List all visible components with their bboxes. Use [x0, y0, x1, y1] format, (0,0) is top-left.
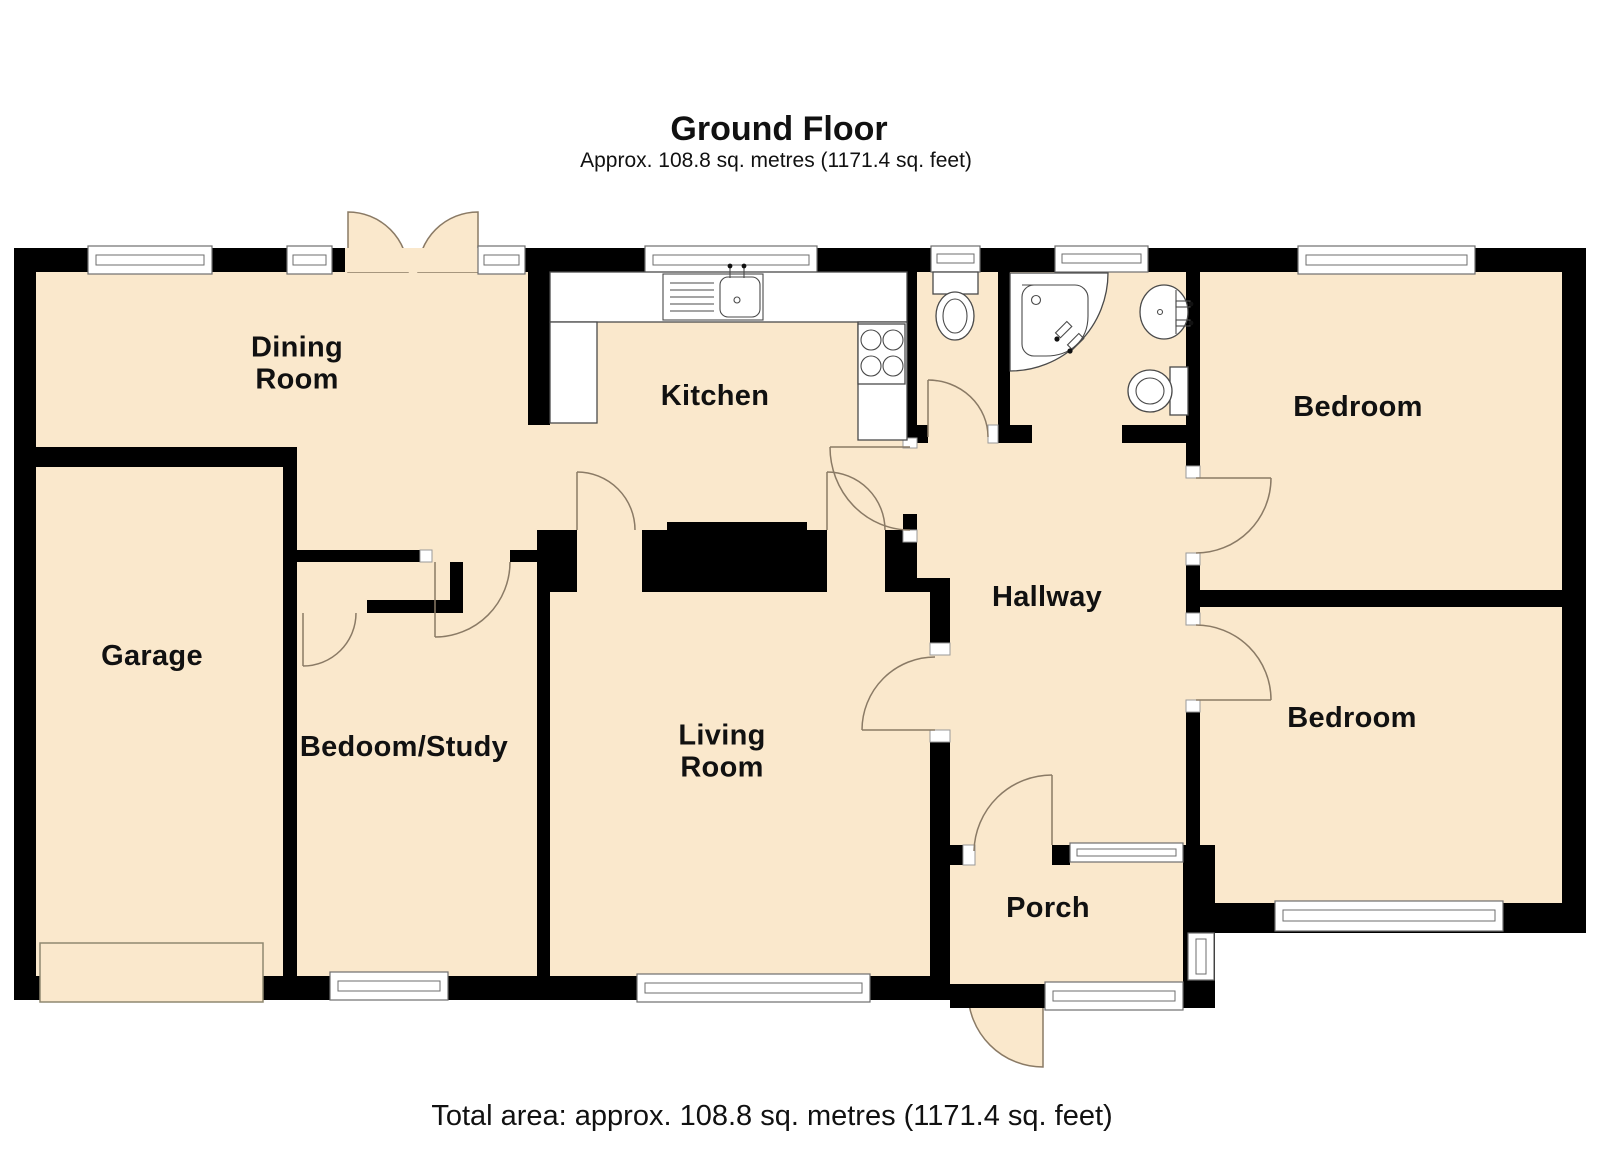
bathroom-window [1055, 246, 1148, 272]
room-label-living-room: Living Room [678, 720, 765, 785]
dining-window-3 [478, 246, 525, 274]
living-room-window [637, 974, 870, 1002]
room-label-dining-room: Dining Room [251, 332, 343, 397]
kitchen-window [645, 246, 817, 274]
room-label-bedroom-bottom: Bedroom [1287, 702, 1416, 734]
bedroom-bottom-window [1275, 901, 1503, 931]
porch-side-window [1188, 933, 1214, 980]
dining-window-1 [88, 246, 212, 274]
hob [858, 324, 905, 384]
garage-door [40, 943, 263, 1002]
room-label-kitchen: Kitchen [661, 380, 769, 412]
porch-top-window [1070, 843, 1183, 862]
porch-bottom-window [1045, 982, 1183, 1010]
floorplan-drawing [0, 0, 1600, 1164]
bedroom-top-window [1298, 246, 1475, 274]
room-label-bedroom-top: Bedroom [1293, 391, 1422, 423]
chimney-breast [667, 522, 807, 592]
total-area-text: Total area: approx. 108.8 sq. metres (11… [431, 1100, 1112, 1133]
wc-window [931, 246, 980, 272]
room-label-hallway: Hallway [992, 581, 1102, 613]
wc-toilet [933, 272, 978, 340]
room-label-bedroom-study: Bedoom/Study [300, 731, 508, 763]
room-label-porch: Porch [1006, 892, 1090, 924]
floorplan-page: Ground Floor Approx. 108.8 sq. metres (1… [0, 0, 1600, 1164]
dining-window-2 [287, 246, 332, 274]
bathroom-toilet [1128, 367, 1188, 415]
study-window [330, 972, 448, 1000]
room-label-garage: Garage [101, 640, 203, 672]
